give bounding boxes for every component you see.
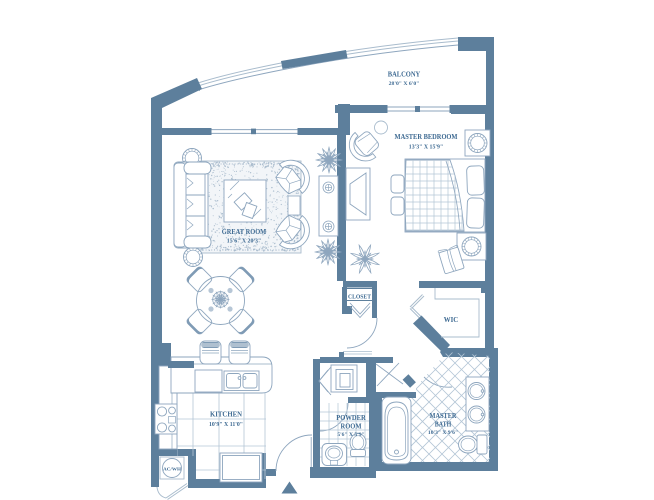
svg-text:10'3" X 9'6": 10'3" X 9'6": [428, 430, 458, 436]
svg-text:MASTER: MASTER: [430, 413, 457, 420]
svg-text:MASTER BEDROOM: MASTER BEDROOM: [395, 133, 458, 141]
svg-text:10'9" X 11'0": 10'9" X 11'0": [209, 422, 243, 428]
svg-text:28'0" X 6'0": 28'0" X 6'0": [389, 81, 420, 87]
svg-text:POWDER: POWDER: [336, 415, 366, 422]
svg-text:5'6" X 5'9": 5'6" X 5'9": [337, 432, 364, 438]
svg-text:BALCONY: BALCONY: [388, 72, 421, 79]
svg-text:CLOSET: CLOSET: [348, 293, 372, 300]
svg-text:GREAT ROOM: GREAT ROOM: [222, 228, 267, 236]
svg-text:WIC: WIC: [444, 316, 459, 324]
svg-text:13'3" X 15'9": 13'3" X 15'9": [409, 145, 443, 151]
svg-text:KITCHEN: KITCHEN: [210, 411, 242, 419]
svg-text:BATH: BATH: [435, 422, 452, 429]
svg-text:ROOM: ROOM: [341, 424, 363, 431]
svg-text:AC/WH: AC/WH: [163, 467, 182, 472]
svg-text:15'6" X 20'3": 15'6" X 20'3": [227, 239, 261, 245]
